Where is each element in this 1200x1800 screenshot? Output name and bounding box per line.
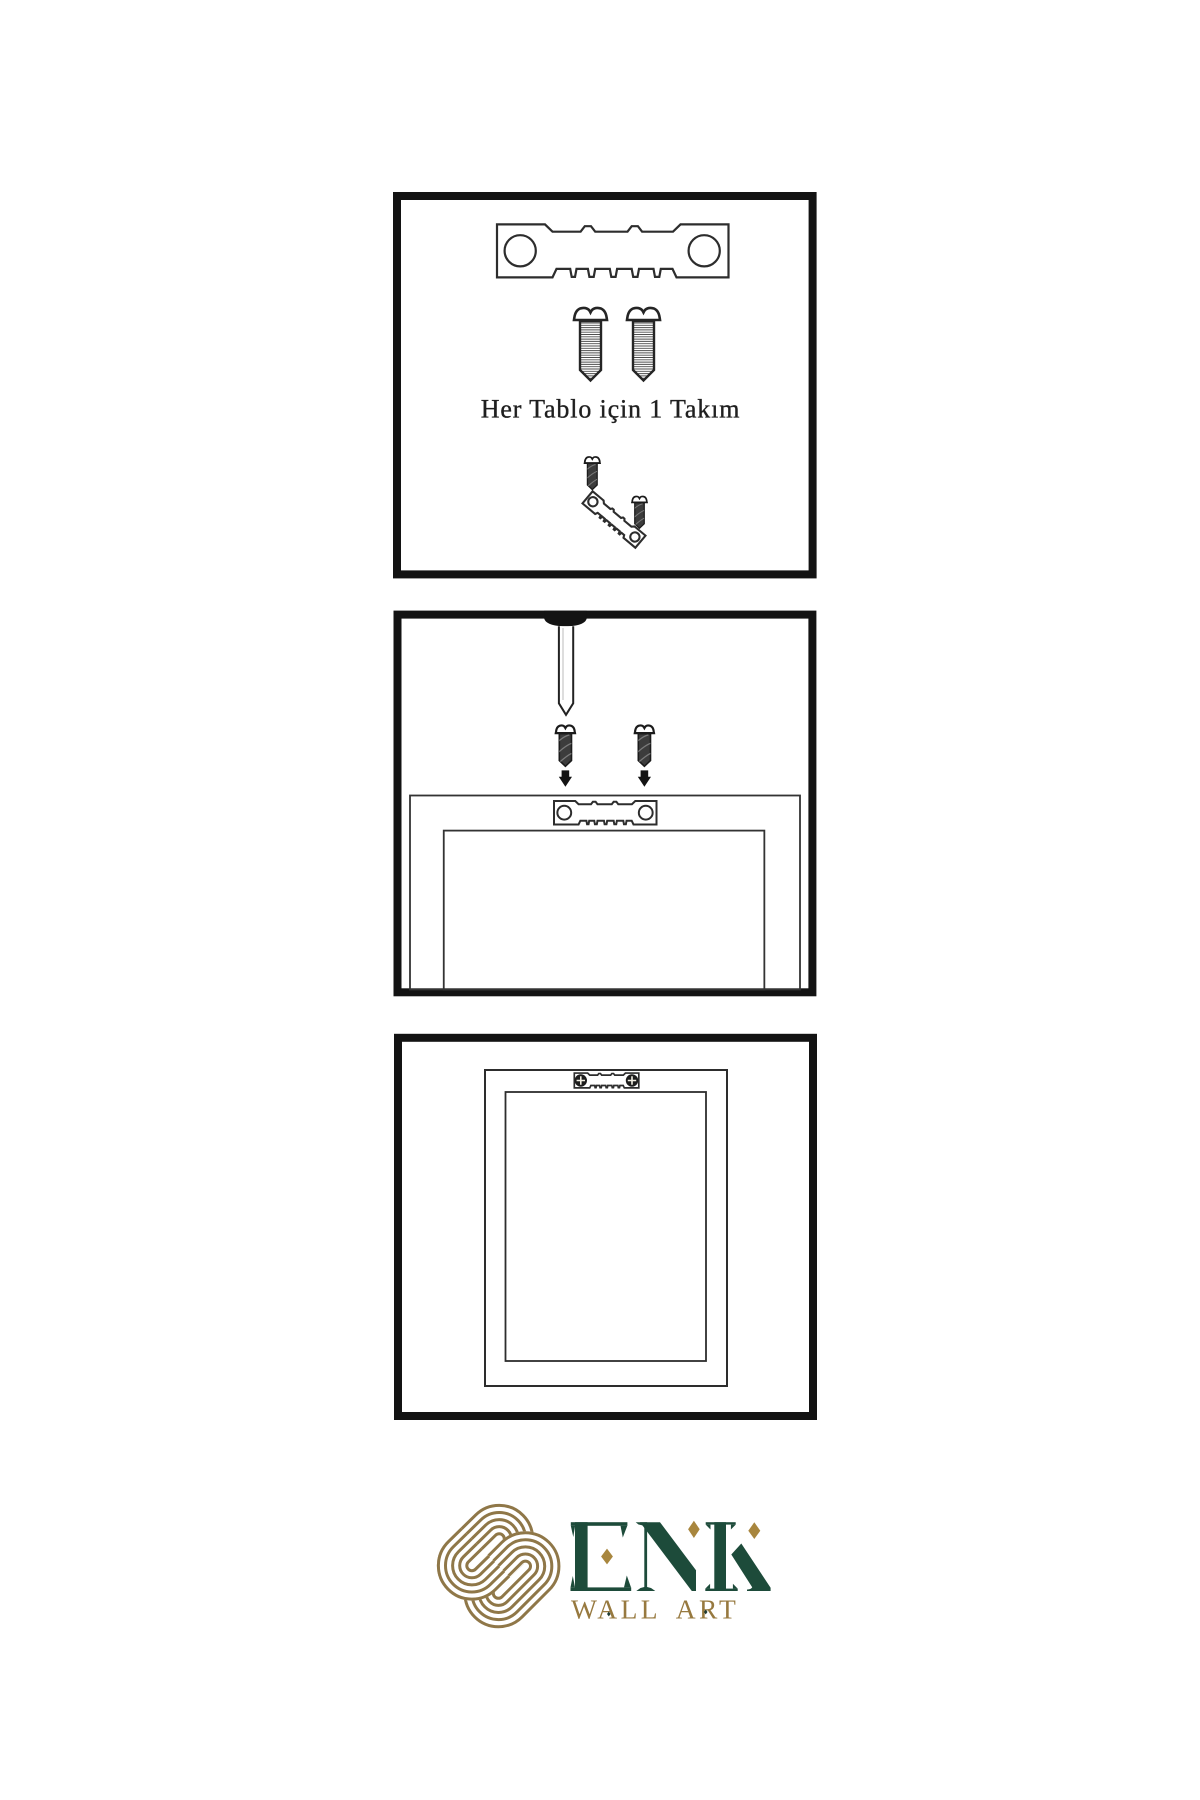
svg-text:Her Tablo için 1 Takım: Her Tablo için 1 Takım bbox=[481, 395, 741, 424]
svg-text:WALL ART: WALL ART bbox=[571, 1594, 739, 1625]
